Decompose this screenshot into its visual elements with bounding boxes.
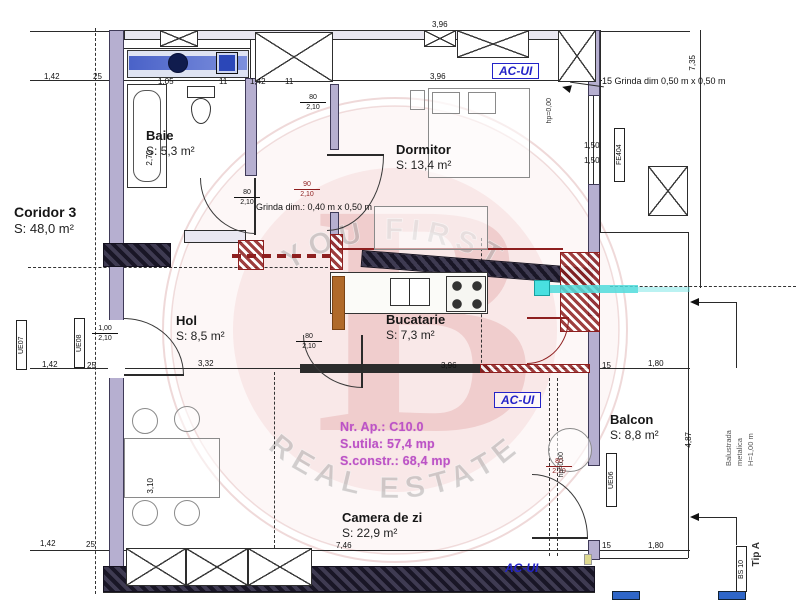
- element-code-label: BS 10: [736, 546, 747, 592]
- dimension-label: 1,50: [584, 141, 600, 150]
- door-height: 2,10: [294, 190, 320, 199]
- dimension-label: 1,80: [648, 359, 664, 368]
- ac-ui-label: AC-UI: [492, 63, 539, 79]
- door-width: 90: [294, 181, 320, 190]
- dimension-label: 11: [219, 77, 227, 86]
- dimension-label: 3,32: [198, 359, 214, 368]
- room-name: Bucatarie: [386, 312, 445, 327]
- door-width: 80: [234, 189, 260, 198]
- door-width: 80: [300, 94, 326, 103]
- dimension-label: 3,96: [430, 72, 446, 81]
- room-area: S: 8,5 m²: [176, 329, 225, 343]
- vertical-note: hp=0,00: [546, 98, 553, 124]
- element-code-label: UE08: [74, 318, 85, 368]
- dimension-label: 3,10: [146, 478, 155, 494]
- dimension-label: 1,80: [648, 541, 664, 550]
- door-size-label: 1,002,10: [92, 325, 118, 343]
- room-area: S: 13,4 m²: [396, 158, 451, 172]
- dimension-label: 1,50: [584, 156, 600, 165]
- element-code-label: UE06: [606, 453, 617, 507]
- room-label: BucatarieS: 7,3 m²: [386, 312, 445, 342]
- dimension-label: 3,96: [432, 20, 448, 29]
- room-area: S: 22,9 m²: [342, 526, 422, 540]
- room-label: Coridor 3S: 48,0 m²: [14, 204, 76, 236]
- room-name: Coridor 3: [14, 204, 76, 220]
- dimension-label: 15: [602, 361, 611, 370]
- door-width: 80: [296, 333, 322, 342]
- vertical-note: hp=0,00: [558, 452, 565, 478]
- dimension-label: 1,42: [250, 77, 266, 86]
- room-label: HolS: 8,5 m²: [176, 313, 225, 343]
- ac-ui-label: AC-UI: [494, 392, 541, 408]
- room-name: Baie: [146, 128, 195, 143]
- room-area: S: 7,3 m²: [386, 328, 445, 342]
- dimension-label: 7,35: [688, 55, 697, 71]
- room-label: Camera de ziS: 22,9 m²: [342, 510, 422, 540]
- room-name: Camera de zi: [342, 510, 422, 525]
- vertical-note: Tip A: [751, 542, 762, 566]
- room-name: Balcon: [610, 412, 659, 427]
- door-width: 1,00: [92, 325, 118, 334]
- ac-ui-label: AC-UI: [505, 561, 538, 575]
- dimension-label: 11: [285, 77, 293, 86]
- door-height: 2,10: [296, 342, 322, 351]
- dimension-label: 4,87: [684, 432, 693, 448]
- door-height: 2,10: [92, 334, 118, 343]
- door-size-label: 802,10: [296, 333, 322, 351]
- dimension-label: 25: [93, 72, 102, 81]
- dimension-label: 15: [602, 541, 611, 550]
- dimension-label: 1,42: [40, 539, 56, 548]
- labels-overlay: Coridor 3S: 48,0 m²BaieS: 5,3 m²Dormitor…: [0, 0, 800, 600]
- dimension-label: 3,96: [441, 361, 457, 370]
- door-size-label: 902,10: [294, 181, 320, 199]
- note-label: Grinda dim.: 0,40 m x 0,50 m: [256, 202, 372, 212]
- dimension-label: 7,46: [336, 541, 352, 550]
- dimension-label: 2,72: [145, 150, 154, 166]
- dimension-label: 25: [87, 361, 96, 370]
- door-size-label: 802,10: [300, 94, 326, 112]
- room-area: S: 8,8 m²: [610, 428, 659, 442]
- dimension-label: 1,42: [42, 360, 58, 369]
- room-area: S: 48,0 m²: [14, 221, 76, 236]
- dimension-label: 25: [86, 540, 95, 549]
- room-name: Dormitor: [396, 142, 451, 157]
- element-code-label: FE404: [614, 128, 625, 182]
- room-name: Hol: [176, 313, 225, 328]
- door-height: 2,10: [300, 103, 326, 112]
- dimension-label: 1,42: [44, 72, 60, 81]
- room-label: BalconS: 8,8 m²: [610, 412, 659, 442]
- note-label: 15 Grinda dim 0,50 m x 0,50 m: [602, 76, 726, 86]
- element-code-label: UE07: [16, 320, 27, 370]
- room-label: DormitorS: 13,4 m²: [396, 142, 451, 172]
- dimension-label: 1,05: [158, 77, 174, 86]
- floor-plan-canvas: B YOU FIRST REAL ESTATE: [0, 0, 800, 600]
